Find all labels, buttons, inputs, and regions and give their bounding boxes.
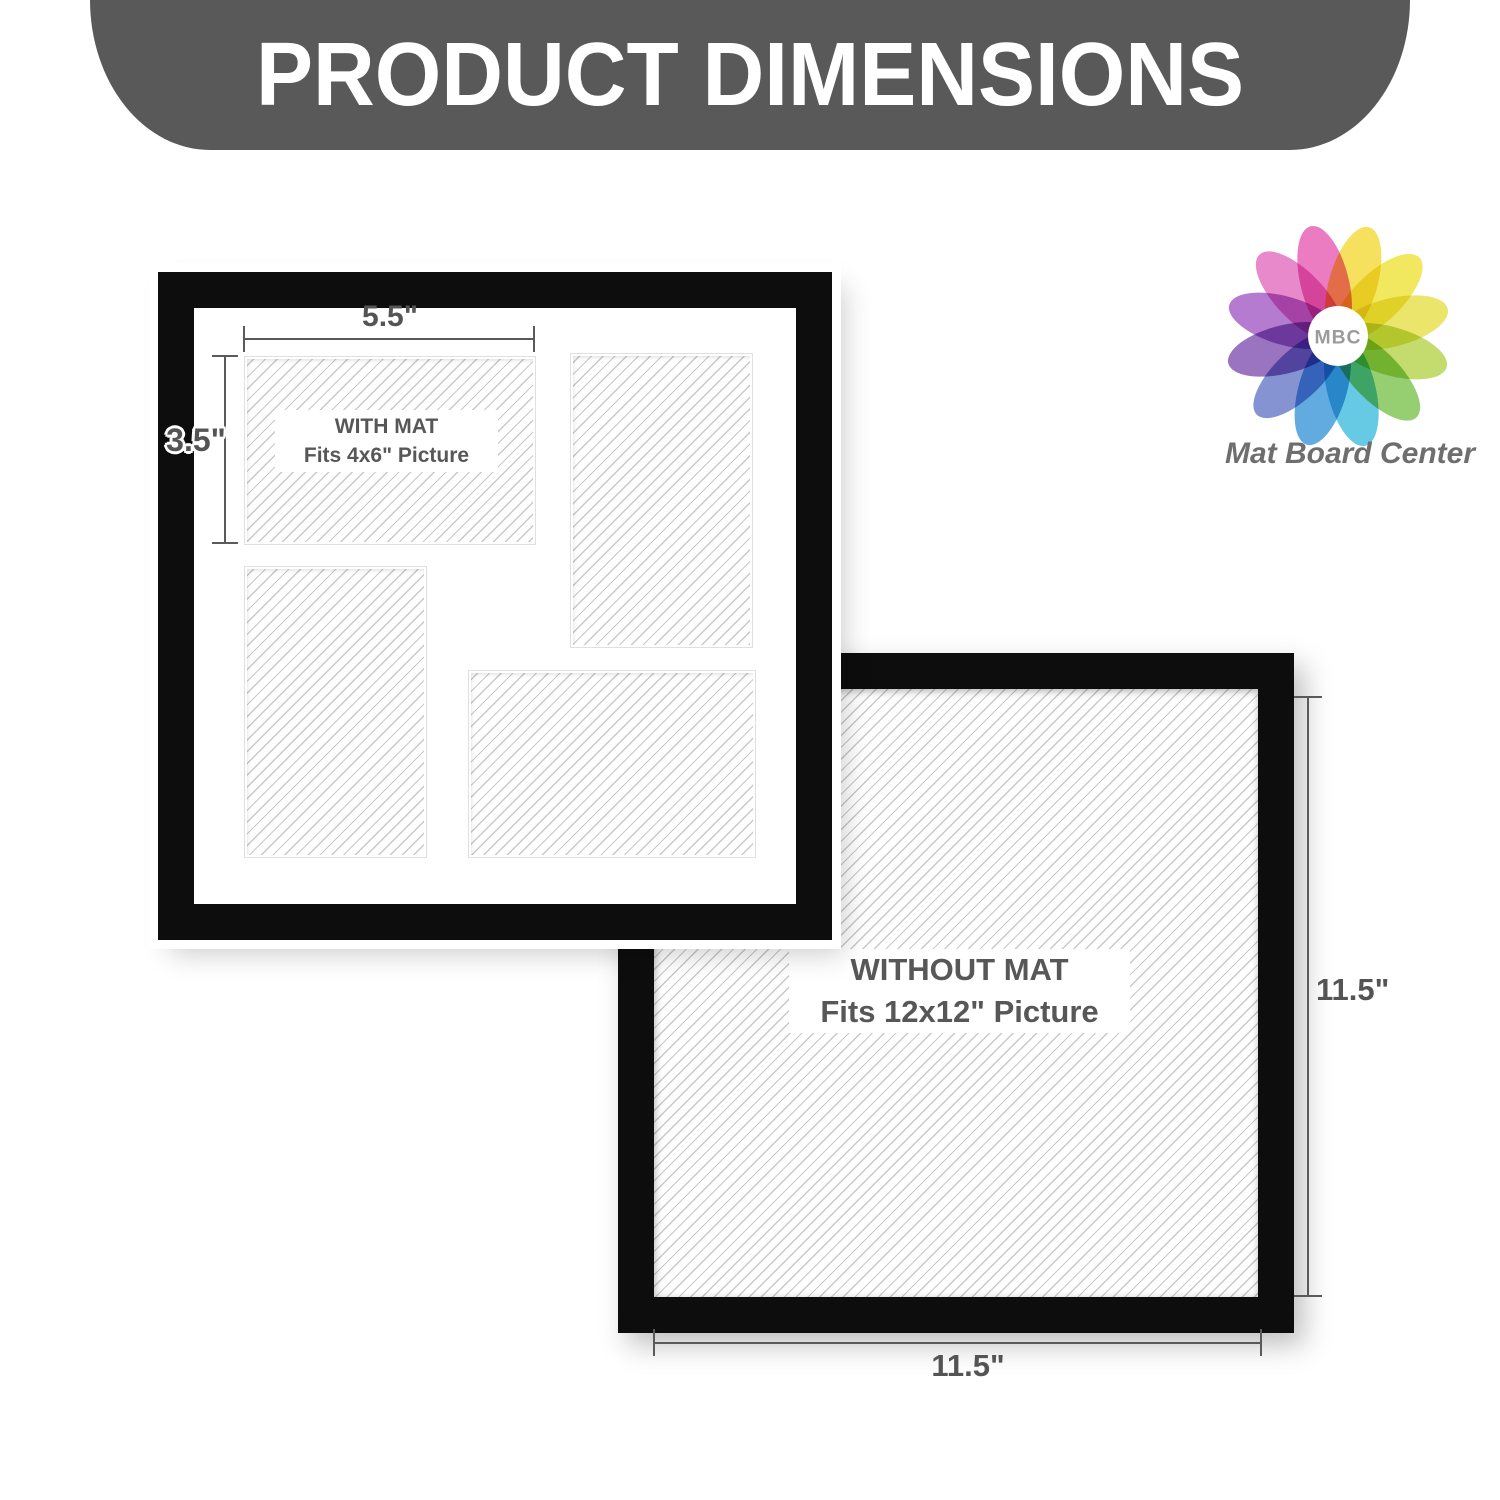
frame-with-mat-caption: WITH MAT Fits 4x6" Picture — [275, 410, 498, 472]
mbc-flower-logo: MBC — [1222, 220, 1454, 452]
caption-line2: Fits 12x12" Picture — [820, 991, 1098, 1033]
height-dimension-tick-top — [1294, 696, 1322, 698]
height-dimension-tick-bottom — [212, 542, 238, 544]
page-title: PRODUCT DIMENSIONS — [256, 24, 1244, 127]
height-dimension-label-11-5: 11.5" — [1316, 972, 1389, 1008]
width-dimension-label-11-5: 11.5" — [908, 1348, 1028, 1384]
height-dimension-line-11-5 — [1307, 697, 1309, 1297]
frame-without-mat-caption: WITHOUT MAT Fits 12x12" Picture — [789, 949, 1130, 1033]
width-dimension-tick-left — [243, 326, 245, 352]
width-dimension-tick-right — [533, 326, 535, 352]
height-dimension-tick-top — [212, 355, 238, 357]
logo-monogram: MBC — [1315, 328, 1362, 349]
width-dimension-tick-left — [653, 1329, 655, 1356]
product-dimensions-page: PRODUCT DIMENSIONS MBC Mat Board Center … — [0, 0, 1500, 1500]
frame-with-mat: WITH MAT Fits 4x6" Picture — [158, 272, 832, 940]
mat-opening-bottom-right-4x6 — [468, 670, 756, 858]
mat-opening-bottom-left-4x6 — [244, 566, 427, 858]
title-banner: PRODUCT DIMENSIONS — [90, 0, 1410, 150]
mat-opening-top-right-4x6 — [570, 353, 753, 648]
width-dimension-tick-right — [1260, 1329, 1262, 1356]
caption-line1: WITH MAT — [335, 412, 438, 441]
height-dimension-label-3-5: 3.5" — [146, 422, 246, 459]
height-dimension-tick-bottom — [1294, 1295, 1322, 1297]
width-dimension-line-11-5 — [654, 1342, 1262, 1344]
caption-line2: Fits 4x6" Picture — [304, 441, 469, 470]
caption-line1: WITHOUT MAT — [850, 949, 1068, 991]
width-dimension-label-5-5: 5.5" — [330, 300, 450, 334]
width-dimension-line-5-5 — [244, 338, 534, 340]
brand-name: Mat Board Center — [1200, 437, 1500, 471]
